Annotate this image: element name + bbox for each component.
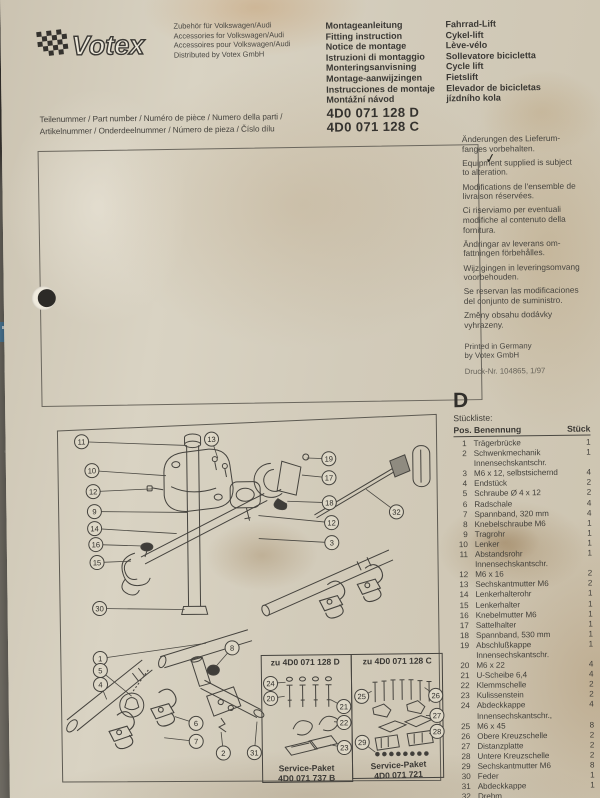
callout-20: 20 <box>264 691 285 705</box>
svg-text:32: 32 <box>392 508 401 517</box>
callout-7: 7 <box>164 734 203 748</box>
callout-25: 25 <box>355 689 372 703</box>
svg-text:24: 24 <box>266 679 275 688</box>
callout-22: 22 <box>334 715 351 729</box>
callout-18: 18 <box>287 496 336 511</box>
callout-23: 23 <box>330 740 351 754</box>
scanned-instruction-sheet: Votex Zubehör für Volkswagen/AudiAccesso… <box>0 0 600 798</box>
svg-text:22: 22 <box>340 718 349 727</box>
svg-text:9: 9 <box>92 507 96 516</box>
photo-of-document: Votex Zubehör für Volkswagen/AudiAccesso… <box>0 0 600 798</box>
svg-text:3: 3 <box>330 538 334 547</box>
callout-32: 32 <box>366 489 403 519</box>
svg-text:17: 17 <box>325 473 334 482</box>
callout-12: 12 <box>86 484 152 499</box>
svg-text:7: 7 <box>194 737 198 746</box>
svg-text:29: 29 <box>358 738 367 747</box>
svg-text:10: 10 <box>88 466 97 475</box>
callout-2: 2 <box>216 732 230 760</box>
svg-text:28: 28 <box>433 727 442 736</box>
svg-text:1: 1 <box>98 654 102 663</box>
svg-text:12: 12 <box>327 518 336 527</box>
service-box-c-title: zu 4D0 071 128 C <box>363 655 432 666</box>
svg-text:13: 13 <box>207 435 216 444</box>
callout-30: 30 <box>93 600 185 615</box>
service-paket-d-number: 4D0 071 737 B <box>278 773 335 784</box>
service-paket-c-number: 4D0 071 721 <box>374 769 423 781</box>
svg-text:16: 16 <box>92 540 101 549</box>
svg-text:23: 23 <box>340 743 349 752</box>
callout-31: 31 <box>247 722 261 760</box>
svg-text:11: 11 <box>78 437 86 446</box>
svg-text:4: 4 <box>98 680 102 689</box>
callout-29: 29 <box>355 735 375 752</box>
callout-12: 12 <box>258 515 338 531</box>
callout-1: 1 <box>93 643 206 665</box>
service-box-d-title: zu 4D0 071 128 D <box>271 657 340 668</box>
callout-21: 21 <box>331 699 351 713</box>
callout-6: 6 <box>175 716 203 730</box>
callout-26: 26 <box>425 687 443 702</box>
callout-layer: 1113101291416153015486723119171812332242… <box>74 429 444 761</box>
callout-8: 8 <box>215 641 239 667</box>
callout-14: 14 <box>88 521 177 536</box>
callout-17: 17 <box>302 471 336 485</box>
svg-text:2: 2 <box>221 749 225 758</box>
callout-3: 3 <box>259 536 339 551</box>
svg-text:6: 6 <box>194 719 198 728</box>
exploded-diagram: zu 4D0 071 128 D zu 4D0 071 128 C Servic… <box>0 0 600 798</box>
svg-text:18: 18 <box>325 498 334 507</box>
callout-28: 28 <box>429 724 444 738</box>
callout-15: 15 <box>90 555 131 569</box>
svg-text:25: 25 <box>357 692 366 701</box>
svg-text:26: 26 <box>431 691 440 700</box>
callout-19: 19 <box>307 452 336 466</box>
service-paket-d-label: Service-Paket <box>279 763 335 774</box>
svg-text:30: 30 <box>95 604 104 613</box>
callout-27: 27 <box>426 708 444 722</box>
callout-13: 13 <box>204 432 218 458</box>
svg-text:27: 27 <box>433 711 442 720</box>
callout-11: 11 <box>74 433 186 448</box>
callout-24: 24 <box>263 676 285 690</box>
svg-text:8: 8 <box>230 644 234 653</box>
svg-text:31: 31 <box>250 748 259 757</box>
svg-text:19: 19 <box>325 454 334 463</box>
svg-text:5: 5 <box>98 666 102 675</box>
callout-16: 16 <box>89 537 143 552</box>
callout-9: 9 <box>87 503 187 518</box>
svg-text:14: 14 <box>90 524 99 533</box>
callout-4: 4 <box>93 677 107 699</box>
callout-10: 10 <box>85 463 166 478</box>
svg-text:15: 15 <box>93 558 102 567</box>
svg-text:20: 20 <box>266 694 275 703</box>
svg-text:21: 21 <box>340 702 349 711</box>
svg-text:12: 12 <box>89 487 98 496</box>
